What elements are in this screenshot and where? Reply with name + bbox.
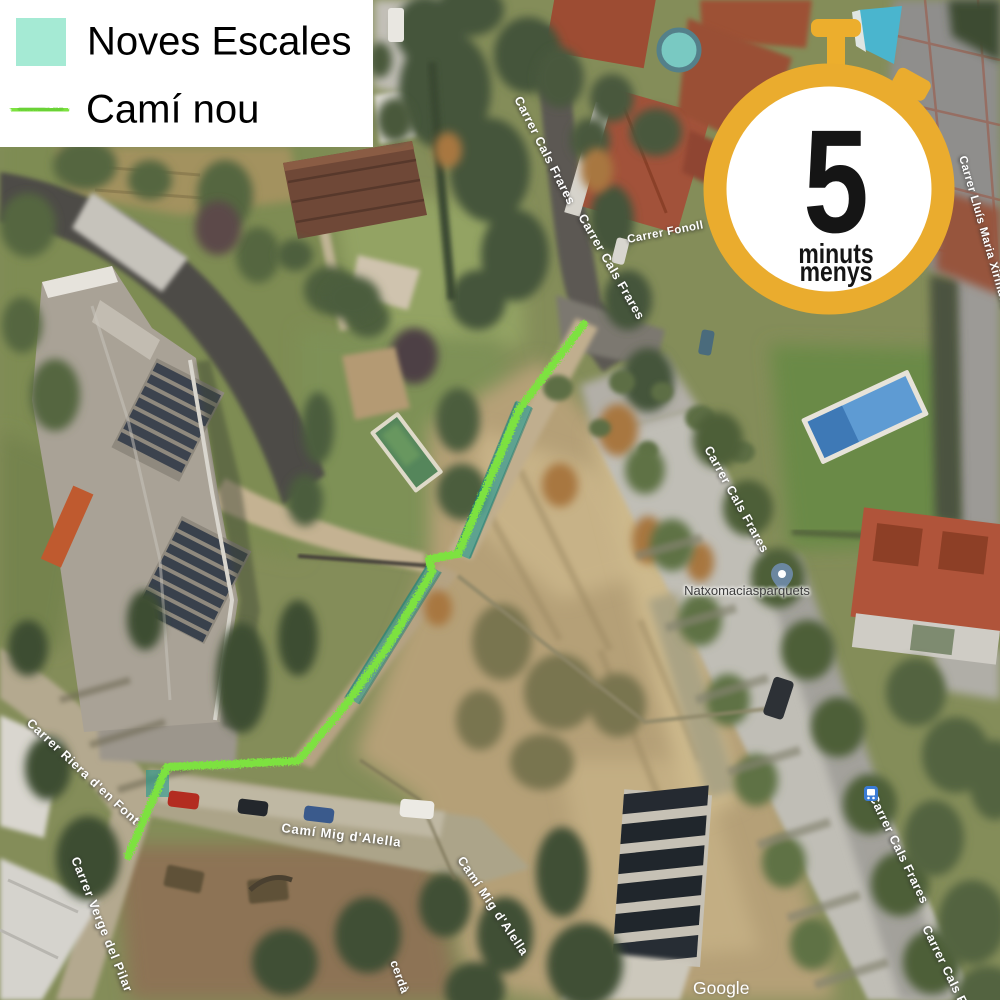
svg-text:Camí nou: Camí nou: [86, 88, 259, 132]
svg-text:Noves Escales: Noves Escales: [87, 20, 352, 64]
svg-text:menys: menys: [800, 257, 873, 288]
svg-text:Natxomaciasparquets: Natxomaciasparquets: [684, 583, 810, 598]
svg-text:Google: Google: [693, 978, 749, 998]
